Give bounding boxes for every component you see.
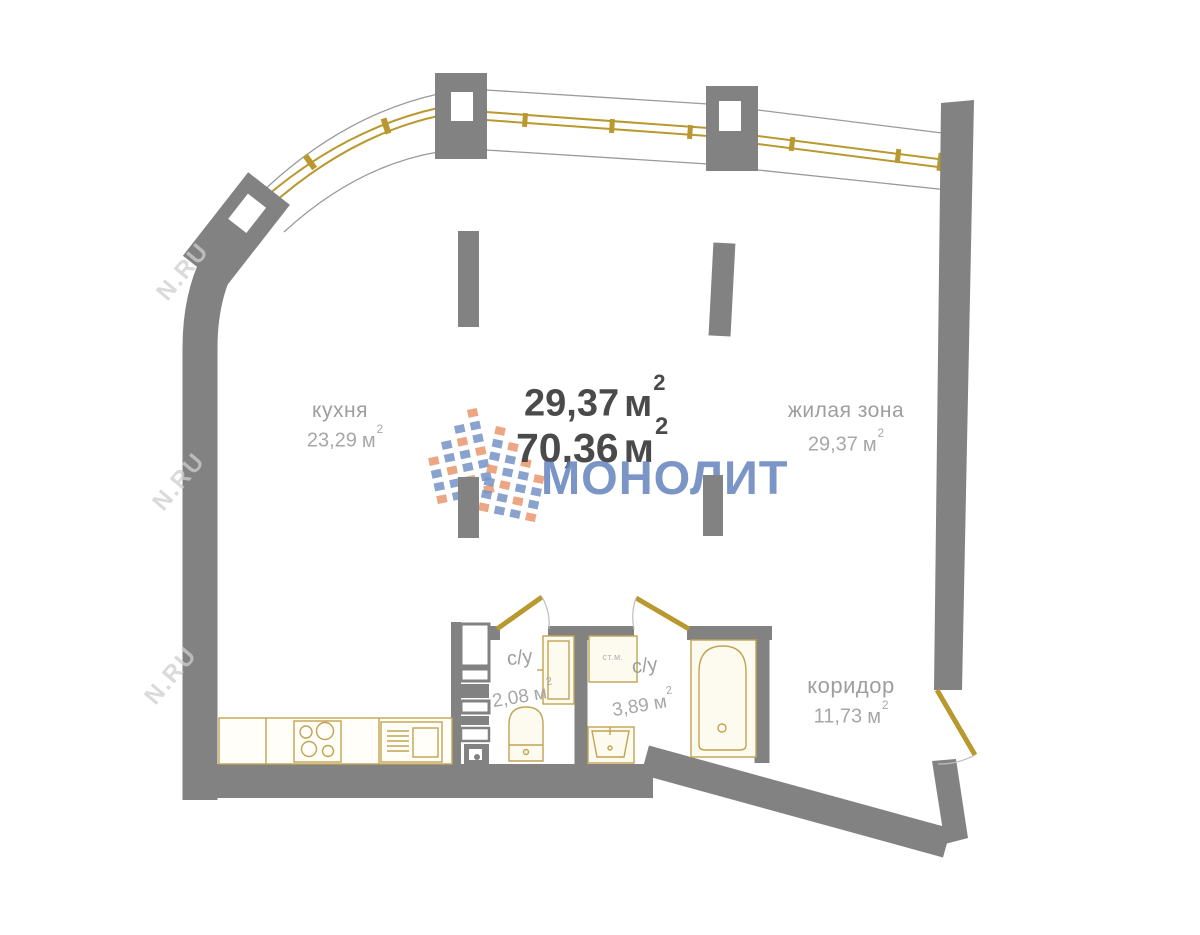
room-label-kitchen: кухня bbox=[280, 399, 400, 423]
wall-bottom-diagonal bbox=[645, 760, 947, 843]
pilaster-upper-right bbox=[709, 242, 736, 336]
door-bath1 bbox=[497, 597, 549, 629]
pilaster-lower-left bbox=[458, 477, 479, 538]
pilaster-lower-right bbox=[703, 475, 723, 536]
kitchen-counter bbox=[219, 718, 452, 764]
area-value: 11,73 bbox=[814, 706, 863, 728]
stove-icon bbox=[294, 721, 341, 762]
room-area-living-zone: 29,37м2 bbox=[778, 433, 914, 457]
unit-label: м bbox=[867, 706, 881, 728]
column-top-left bbox=[435, 73, 487, 159]
toilet-icon bbox=[509, 707, 543, 761]
wall-right-upper bbox=[934, 100, 974, 690]
area-value: 3,89 bbox=[611, 695, 651, 722]
room-label-bath1: с/у bbox=[506, 646, 534, 672]
brand-name: МОНОЛИТ bbox=[541, 450, 789, 505]
door-bath2 bbox=[633, 598, 689, 629]
room-label-living-zone: жилая зона bbox=[778, 399, 914, 423]
unit-sup: 2 bbox=[878, 427, 884, 440]
bathtub-icon bbox=[691, 640, 756, 757]
room-label-corridor: коридор bbox=[795, 673, 907, 699]
room-area-corridor: 11,73м2 bbox=[795, 705, 907, 729]
living-zone-area-total: 29,37м2 bbox=[524, 382, 665, 426]
wall-left-curved bbox=[200, 220, 250, 800]
pilaster-upper-left bbox=[458, 231, 479, 327]
unit-sup: 2 bbox=[377, 423, 383, 436]
unit-label: м bbox=[624, 383, 652, 425]
window-band bbox=[258, 90, 950, 232]
unit-label: м bbox=[863, 434, 877, 456]
door-entrance bbox=[937, 690, 975, 764]
area-value: 2,08 bbox=[491, 686, 531, 713]
column-top-right bbox=[706, 86, 758, 171]
washing-machine-label: ст.м. bbox=[589, 652, 637, 662]
unit-label: м bbox=[362, 430, 376, 452]
floorplan-stage: N.RU N.RU N.RU 29,37м2 70,36м2 МОНОЛИТ к… bbox=[0, 0, 1200, 935]
kitchen-sink-icon bbox=[381, 722, 442, 762]
bath-sink-icon bbox=[588, 727, 634, 763]
structural-columns bbox=[183, 73, 758, 337]
vent-shaft bbox=[451, 622, 489, 770]
unit-sup: 2 bbox=[653, 370, 665, 395]
unit-sup: 2 bbox=[882, 699, 888, 712]
living-zone-area-value: 29,37 bbox=[524, 383, 619, 425]
area-value: 23,29 bbox=[307, 430, 357, 452]
room-area-kitchen: 23,29м2 bbox=[280, 429, 410, 453]
area-value: 29,37 bbox=[808, 434, 858, 456]
unit-sup: 2 bbox=[655, 413, 668, 440]
